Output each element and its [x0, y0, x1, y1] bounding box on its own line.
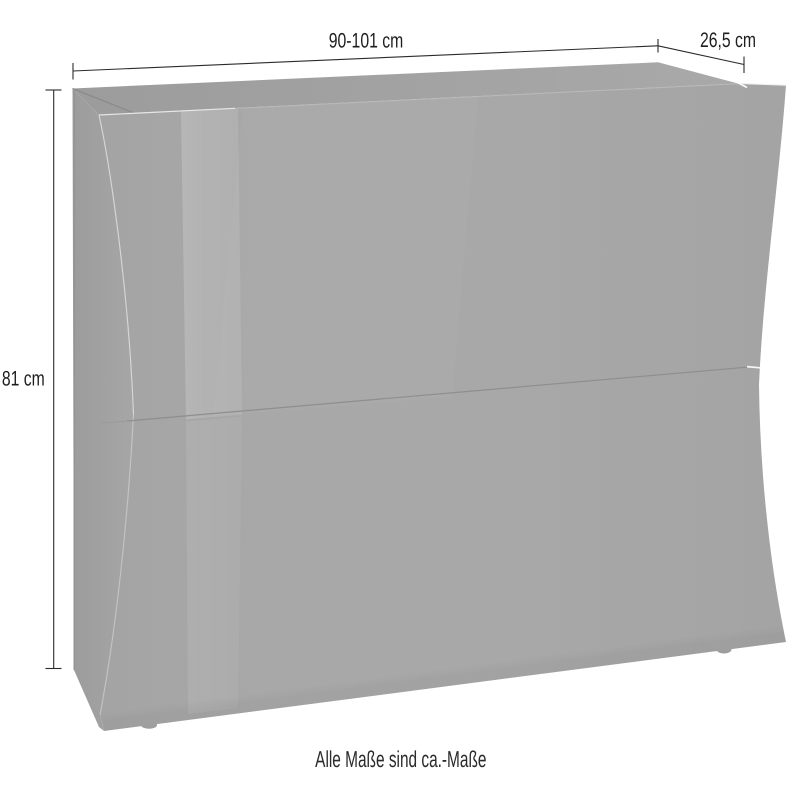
svg-text:26,5 cm: 26,5 cm [700, 29, 756, 52]
svg-text:Alle Maße sind ca.-Maße: Alle Maße sind ca.-Maße [315, 746, 486, 772]
svg-text:90-101 cm: 90-101 cm [329, 30, 403, 53]
svg-text:81 cm: 81 cm [2, 368, 45, 391]
